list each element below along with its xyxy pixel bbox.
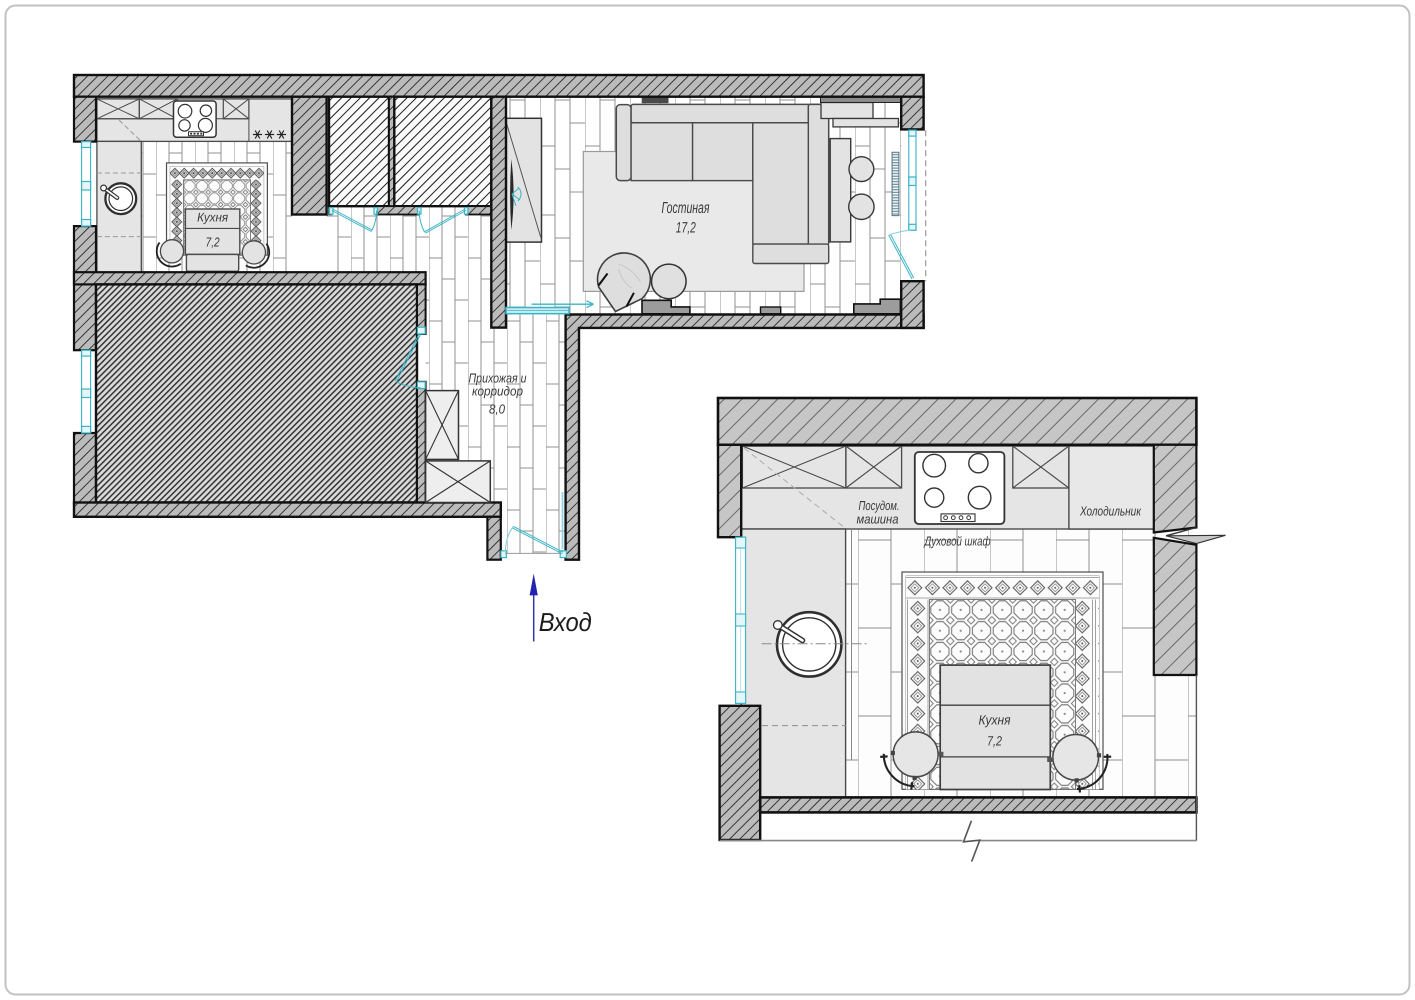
svg-text:7,2: 7,2: [206, 235, 221, 250]
svg-text:17,2: 17,2: [676, 220, 696, 237]
svg-text:Холодильник: Холодильник: [1079, 504, 1141, 519]
svg-text:8,0: 8,0: [489, 402, 506, 417]
svg-text:Кухня: Кухня: [197, 211, 228, 225]
svg-text:Кухня: Кухня: [979, 712, 1011, 727]
svg-text:Вход: Вход: [539, 607, 592, 637]
svg-text:Духовой шкаф: Духовой шкаф: [923, 534, 991, 549]
svg-text:машина: машина: [857, 512, 899, 527]
svg-text:7,2: 7,2: [987, 734, 1002, 749]
svg-text:Гостиная: Гостиная: [662, 200, 710, 217]
svg-text:корридор: корридор: [472, 384, 523, 399]
